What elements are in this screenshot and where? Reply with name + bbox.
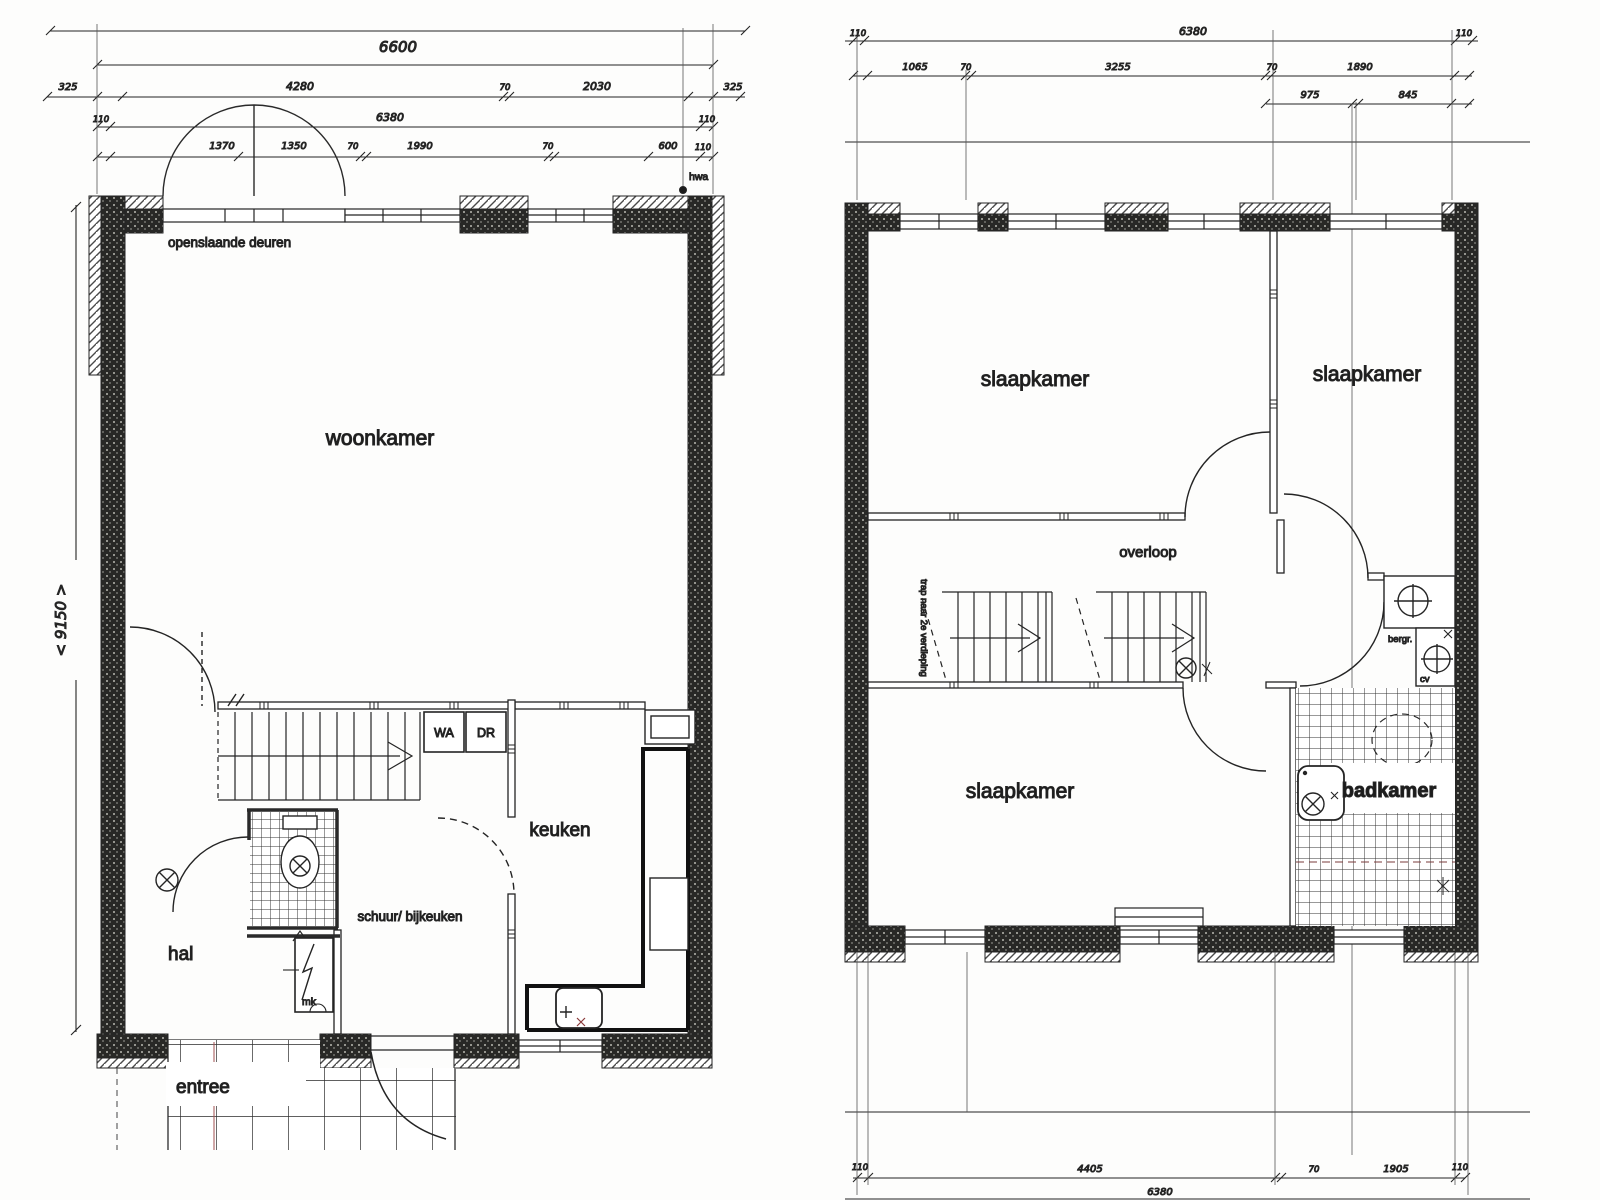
landing-door-swing-arc: [1300, 602, 1384, 686]
gf-dim-wall-left: 110: [93, 115, 109, 125]
bedroom2-door-swing-arc: [1284, 494, 1368, 578]
room-label-slaapkamer-1: slaapkamer: [981, 368, 1090, 391]
room-label-hal: hal: [168, 944, 193, 965]
uf-dim-bottom-2: 1905: [1383, 1164, 1408, 1175]
uf-dim-row2-4: 1890: [1347, 62, 1372, 73]
gf-dim-row4-3: 1990: [407, 141, 432, 152]
meter-closet-label: mk: [302, 996, 317, 1008]
entree-steps: [117, 1040, 456, 1150]
gf-dim-row4-5: 600: [658, 141, 677, 152]
kitchen-appliance: [650, 878, 688, 950]
uf-dim-row2-3: 70: [1267, 63, 1278, 73]
room-label-keuken: keuken: [529, 820, 590, 841]
gf-dim-row4-1: 1350: [281, 141, 306, 152]
room-label-schuur: schuur/ bijkeuken: [357, 909, 462, 924]
stairs-note-label: trap naar 2e verdieping: [918, 579, 929, 677]
gf-dim-row4-4: 70: [543, 142, 554, 152]
gf-dim-row2-1: 4280: [286, 80, 314, 93]
dryer-label: DR: [477, 726, 495, 740]
uf-dim-bottom-total: 6380: [1147, 1187, 1172, 1198]
toilet-icon: [281, 816, 319, 888]
bedroom1-door-swing-arc: [1185, 432, 1270, 517]
gf-dim-row2-2: 70: [500, 83, 511, 93]
room-label-overloop: overloop: [1119, 544, 1177, 561]
gf-dim-inner-total: 6380: [376, 111, 404, 124]
uf-dim-row2-2: 3255: [1105, 62, 1130, 73]
uf-dim-sub-0: 975: [1300, 90, 1319, 101]
uf-dim-wall-tl: 110: [850, 29, 866, 39]
gf-toilet-room: [156, 810, 340, 941]
room-label-bergr: bergr.: [1388, 634, 1412, 645]
pantry-door-swing-arc: [438, 818, 514, 894]
room-label-slaapkamer-2: slaapkamer: [1313, 363, 1422, 386]
bathroom-area: [1296, 688, 1455, 926]
uf-dim-sub-1: 845: [1398, 90, 1417, 101]
uf-bottom-dimension-chains: [845, 952, 1530, 1199]
gf-depth-dimension: [71, 202, 81, 1035]
gf-dim-row2-0: 325: [58, 82, 77, 93]
gf-dim-row4-0: 1370: [209, 141, 234, 152]
washing-machine-label: WA: [434, 726, 454, 740]
gf-dim-row4-2: 70: [348, 142, 359, 152]
rain-drain-icon: [680, 187, 687, 194]
upper-floor-plan: 6380 110 110 1065 70 3255 70 1890 975 84…: [845, 25, 1530, 1199]
gf-depth-label: < 9150 >: [52, 584, 70, 657]
light-point-icon: [1176, 658, 1196, 678]
uf-dim-wall-tr: 110: [1456, 29, 1472, 39]
floorplan-page: 6600 325 4280 70 2030 325 6380 110 110 1…: [0, 0, 1600, 1200]
gf-dim-row2-4: 325: [723, 82, 742, 93]
room-label-woonkamer: woonkamer: [325, 427, 435, 450]
gf-windows: [163, 209, 613, 1052]
kitchen-cupboard: [645, 710, 695, 744]
uf-dim-row2-0: 1065: [902, 62, 927, 73]
storage-cv-closets: [1384, 576, 1455, 686]
uf-dim-bottom-1: 70: [1309, 1165, 1320, 1175]
gf-exterior-walls: [89, 196, 724, 1068]
gf-dim-wall-right: 110: [699, 115, 715, 125]
gf-staircase: [218, 712, 420, 800]
uf-dim-row2-1: 70: [961, 63, 972, 73]
light-point-icon: [156, 869, 178, 891]
gf-dim-row2-3: 2030: [583, 80, 611, 93]
washbasin-icon: [1298, 766, 1344, 820]
room-label-slaapkamer-3: slaapkamer: [966, 780, 1075, 803]
gf-dim-total: 6600: [379, 38, 417, 56]
uf-staircase: [922, 592, 1212, 682]
kitchen-sink-icon: [556, 988, 602, 1028]
uf-dim-total: 6380: [1179, 25, 1207, 38]
uf-dim-bottom-0: 4405: [1077, 1164, 1102, 1175]
french-doors-swing-arc: [163, 105, 345, 196]
woonkamer-door: [130, 627, 244, 712]
uf-dim-wall-br: 110: [1452, 1163, 1468, 1173]
uf-dim-wall-bl: 110: [852, 1163, 868, 1173]
room-label-cv: cv: [1420, 674, 1430, 685]
toilet-door-swing-arc: [173, 837, 248, 912]
gf-hwa-label: hwa: [689, 171, 708, 183]
room-label-badkamer: badkamer: [1342, 780, 1437, 802]
gf-doors-label: openslaande deuren: [168, 235, 291, 250]
ground-floor-plan: 6600 325 4280 70 2030 325 6380 110 110 1…: [43, 24, 750, 1150]
room-label-entree: entree: [176, 1077, 230, 1098]
gf-dim-row4-6: 110: [695, 143, 711, 153]
bedroom3-door-swing-arc: [1183, 688, 1266, 771]
floorplan-drawing: 6600 325 4280 70 2030 325 6380 110 110 1…: [0, 0, 1600, 1200]
